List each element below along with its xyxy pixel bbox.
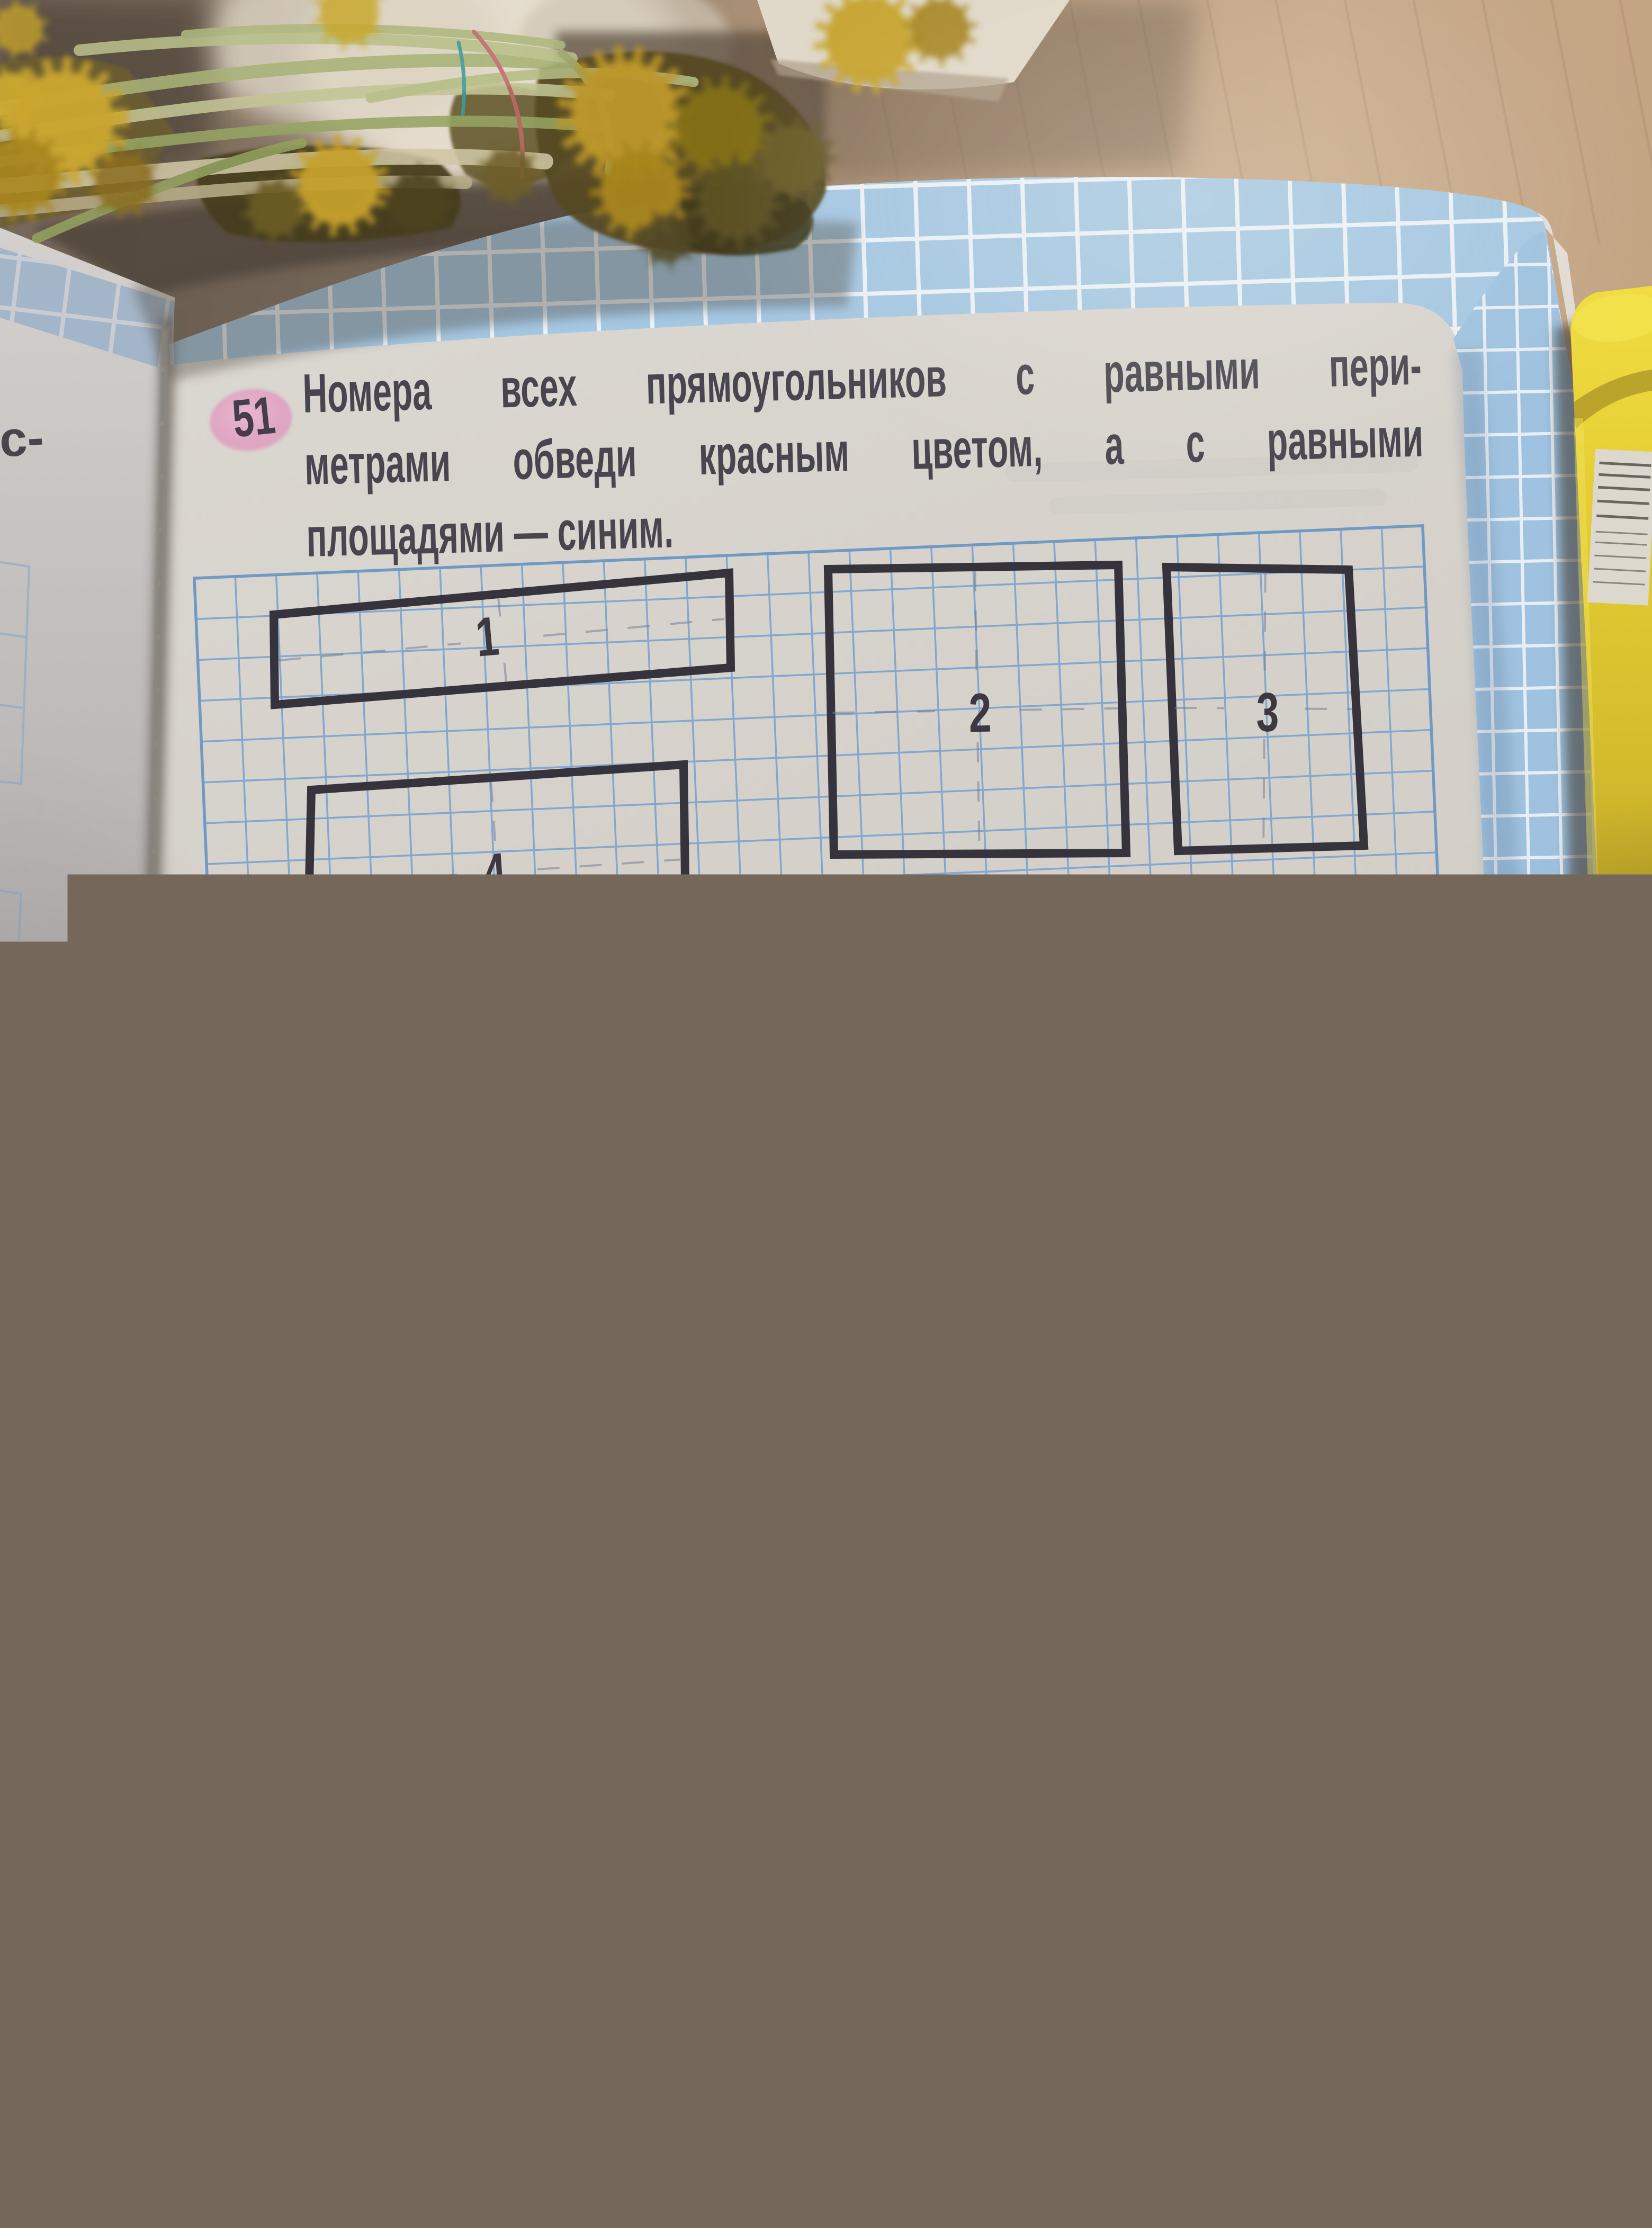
svg-text:75: 75 bbox=[1523, 2103, 1571, 2162]
